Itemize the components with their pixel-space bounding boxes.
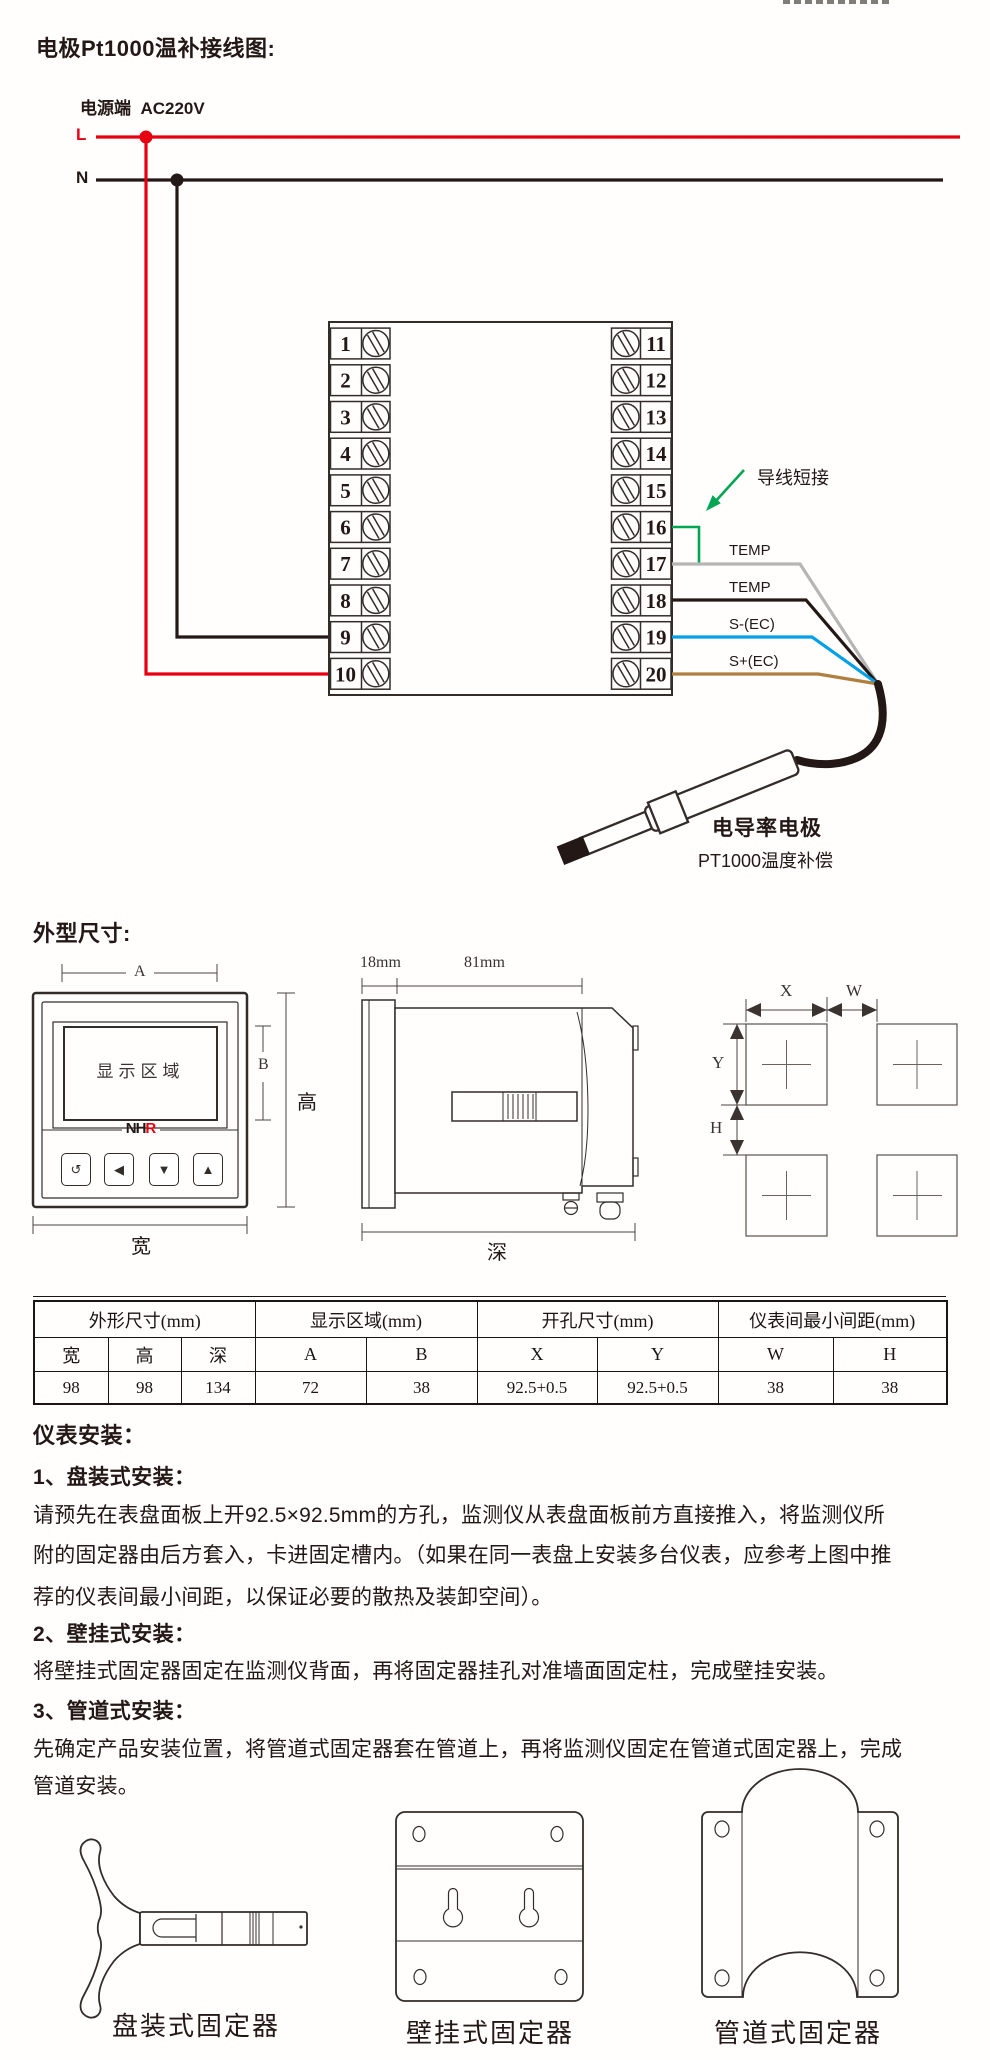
cutout-y-label: Y: [712, 1053, 724, 1073]
terminal-3: 3: [331, 402, 391, 433]
spec-group-header: 外形尺寸(mm): [34, 1301, 255, 1338]
spec-col-header: W: [718, 1338, 833, 1372]
screw-icon: [363, 514, 389, 540]
install-line: 先确定产品安装位置，将管道式固定器套在管道上，再将监测仪固定在管道式固定器上，完…: [33, 1733, 902, 1763]
front-view-drawing: [33, 964, 295, 1234]
terminal-1: 1: [331, 328, 391, 359]
electrode-subtitle: PT1000温度补偿: [698, 847, 833, 873]
terminal-number: 4: [340, 442, 351, 466]
electrode-name: 电导率电极: [712, 812, 822, 842]
screw-icon: [613, 441, 639, 467]
terminal-number: 17: [646, 552, 667, 576]
terminal-number: 16: [646, 516, 667, 540]
wire-label-temp-b: TEMP: [729, 579, 771, 596]
wall-fixture-label: 壁挂式固定器: [396, 2013, 584, 2050]
install-heading-2: 2、壁挂式安装：: [33, 1618, 196, 1648]
terminal-number: 13: [646, 405, 667, 429]
spec-value: 92.5+0.5: [597, 1372, 718, 1405]
spec-value: 38: [718, 1372, 833, 1405]
terminal-10: 10: [331, 658, 391, 689]
dim-b-label: B: [258, 1056, 269, 1074]
terminal-8: 8: [331, 585, 391, 616]
cutout-x-label: X: [780, 981, 792, 1001]
terminal-16: 16: [612, 512, 672, 543]
dim-81mm-label: 81mm: [464, 954, 505, 972]
terminal-19: 19: [612, 622, 672, 653]
spec-col-header: Y: [597, 1338, 718, 1372]
spec-col-header: 深: [181, 1338, 255, 1372]
manual-page: 12345678910 11121314151617181920: [0, 0, 990, 2060]
terminal-number: 2: [340, 369, 351, 393]
spec-col-header: X: [477, 1338, 597, 1372]
terminal-5: 5: [331, 475, 391, 506]
jumper-label: 导线短接: [757, 464, 829, 490]
spec-col-header: H: [833, 1338, 947, 1372]
spec-group-header: 仪表间最小间距(mm): [718, 1301, 947, 1338]
line-n-label: N: [76, 168, 88, 188]
wire-label-temp-a: TEMP: [729, 542, 771, 559]
screw-icon: [363, 404, 389, 430]
spec-col-header: B: [366, 1338, 477, 1372]
terminal-14: 14: [612, 438, 672, 469]
ec-plus-wire: [672, 674, 878, 684]
electrode-cable: [797, 684, 883, 764]
height-label: 高: [297, 1086, 317, 1115]
screw-icon: [363, 551, 389, 577]
cutout-w-label: W: [846, 981, 862, 1001]
terminal-6: 6: [331, 512, 391, 543]
terminal-number: 10: [335, 662, 356, 686]
screw-icon: [613, 661, 639, 687]
terminal-4: 4: [331, 438, 391, 469]
terminal-number: 5: [340, 479, 351, 503]
table-top-rule: [33, 1296, 946, 1297]
terminal-number: 8: [340, 589, 351, 613]
spec-value: 98: [108, 1372, 181, 1405]
panel-button-0[interactable]: ↺: [61, 1153, 91, 1186]
wiring-title: 电极Pt1000温补接线图:: [36, 31, 275, 63]
terminal-11: 11: [612, 328, 672, 359]
screw-icon: [363, 661, 389, 687]
installation-title: 仪表安装：: [33, 1418, 146, 1450]
screw-icon: [613, 624, 639, 650]
terminal-number: 18: [646, 589, 667, 613]
spec-value: 72: [255, 1372, 366, 1405]
spec-value: 98: [34, 1372, 108, 1405]
install-line: 荐的仪表间最小间距，以保证必要的散热及装卸空间）。: [33, 1581, 553, 1611]
screw-icon: [363, 367, 389, 393]
terminal-2: 2: [331, 365, 391, 396]
panel-button-1[interactable]: ◀: [104, 1153, 134, 1186]
terminal-20: 20: [612, 658, 672, 689]
terminal-number: 11: [646, 332, 666, 356]
screw-icon: [613, 477, 639, 503]
terminal-18: 18: [612, 585, 672, 616]
dimensions-title: 外型尺寸:: [33, 916, 131, 948]
screw-icon: [613, 331, 639, 357]
panel-fixture-drawing: [81, 1839, 308, 2017]
terminal-9: 9: [331, 622, 391, 653]
width-label: 宽: [131, 1230, 151, 1259]
screw-icon: [363, 624, 389, 650]
pipe-fixture-drawing: [702, 1769, 898, 1997]
wall-fixture-drawing: [396, 1812, 583, 2001]
depth-label: 深: [487, 1236, 507, 1265]
install-heading-1: 1、盘装式安装：: [33, 1461, 196, 1491]
terminal-number: 6: [340, 516, 351, 540]
spec-group-header: 开孔尺寸(mm): [477, 1301, 718, 1338]
terminal-number: 9: [340, 626, 351, 650]
terminal-7: 7: [331, 548, 391, 579]
cable-gland: [597, 1193, 623, 1202]
terminal-number: 20: [646, 662, 667, 686]
power-terminal-label: 电源端 AC220V: [80, 94, 205, 119]
dim-a-label: A: [134, 963, 146, 981]
install-line: 管道安装。: [33, 1770, 139, 1800]
terminal-number: 12: [646, 369, 667, 393]
screw-icon: [613, 551, 639, 577]
screw-icon: [363, 587, 389, 613]
panel-fixture-label: 盘装式固定器: [100, 2006, 292, 2043]
wire-label-ec-minus: S-(EC): [729, 616, 775, 633]
spec-table: 外形尺寸(mm)显示区域(mm)开孔尺寸(mm)仪表间最小间距(mm)宽高深AB…: [33, 1300, 948, 1405]
dim-18mm-label: 18mm: [360, 954, 401, 972]
screw-icon: [613, 404, 639, 430]
install-heading-3: 3、管道式安装：: [33, 1695, 196, 1725]
spec-col-header: 高: [108, 1338, 181, 1372]
display-area-label: 显示区域: [64, 1057, 217, 1082]
terminal-number: 7: [340, 552, 351, 576]
install-line: 附的固定器由后方套入，卡进固定槽内。（如果在同一表盘上安装多台仪表，应参考上图中…: [33, 1539, 892, 1569]
spec-group-header: 显示区域(mm): [255, 1301, 477, 1338]
logo-black: NH: [126, 1120, 146, 1137]
cutout-diagram: [721, 997, 957, 1236]
panel-button-3[interactable]: ▲: [193, 1153, 223, 1186]
terminal-12: 12: [612, 365, 672, 396]
panel-button-2[interactable]: ▼: [149, 1153, 179, 1186]
cutout-h-label: H: [710, 1118, 722, 1138]
terminal-number: 15: [646, 479, 667, 503]
screw-icon: [613, 587, 639, 613]
live-feed-wire: [146, 137, 330, 674]
side-view-drawing: [362, 978, 638, 1241]
terminal-number: 19: [646, 626, 667, 650]
logo-red: R: [145, 1120, 155, 1137]
temp-wire-b: [672, 600, 878, 684]
screw-icon: [613, 514, 639, 540]
screw-icon: [363, 331, 389, 357]
terminal-number: 14: [646, 442, 668, 466]
screw-icon: [363, 441, 389, 467]
screw-icon: [363, 477, 389, 503]
terminal-13: 13: [612, 402, 672, 433]
line-l-label: L: [76, 125, 86, 145]
spec-value: 92.5+0.5: [477, 1372, 597, 1405]
screw-icon: [613, 367, 639, 393]
wire-label-ec-plus: S+(EC): [729, 653, 779, 670]
spec-col-header: A: [255, 1338, 366, 1372]
terminal-17: 17: [612, 548, 672, 579]
earth-stud: [563, 1193, 579, 1200]
spec-value: 38: [833, 1372, 947, 1405]
terminal-number: 1: [340, 332, 351, 356]
pipe-fixture-label: 管道式固定器: [703, 2013, 893, 2050]
install-line: 将壁挂式固定器固定在监测仪背面，再将固定器挂孔对准墙面固定柱，完成壁挂安装。: [33, 1655, 839, 1685]
install-line: 请预先在表盘面板上开92.5×92.5mm的方孔，监测仪从表盘面板前方直接推入，…: [33, 1499, 885, 1529]
terminal-15: 15: [612, 475, 672, 506]
spec-value: 134: [181, 1372, 255, 1405]
spec-value: 38: [366, 1372, 477, 1405]
nhr-logo: NHR: [64, 1120, 217, 1137]
spec-col-header: 宽: [34, 1338, 108, 1372]
terminal-number: 3: [340, 405, 351, 429]
neutral-feed-wire: [177, 180, 330, 637]
